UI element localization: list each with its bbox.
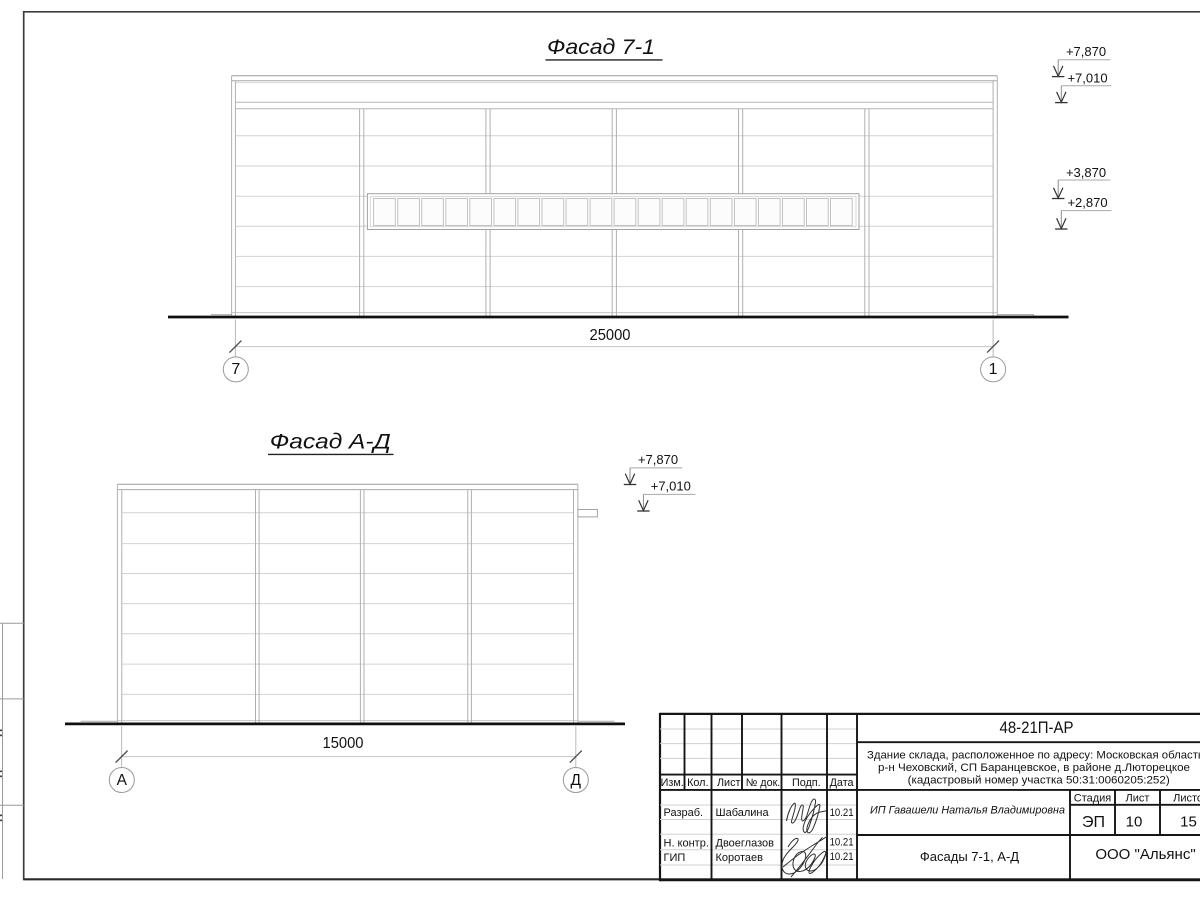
- svg-text:р-н Чеховский, СП Баранцевское: р-н Чеховский, СП Баранцевское, в районе…: [878, 762, 1190, 774]
- svg-text:10.21: 10.21: [830, 836, 854, 848]
- svg-text:+7,010: +7,010: [1067, 70, 1107, 85]
- svg-text:Подп.: Подп.: [792, 777, 821, 789]
- svg-text:48-21П-АР: 48-21П-АР: [1000, 719, 1074, 737]
- svg-text:15000: 15000: [323, 735, 364, 752]
- svg-text:1: 1: [989, 361, 998, 378]
- svg-text:Фасад А-Д: Фасад А-Д: [270, 429, 391, 453]
- svg-text:Кол.: Кол.: [687, 777, 708, 789]
- svg-text:Стадия: Стадия: [1074, 792, 1112, 804]
- svg-text:ГИП: ГИП: [664, 852, 686, 864]
- svg-text:Двоеглазов: Двоеглазов: [716, 838, 775, 850]
- svg-text:10: 10: [1126, 814, 1143, 831]
- svg-text:Коротаев: Коротаев: [716, 852, 764, 864]
- svg-text:ЭП: ЭП: [1082, 814, 1105, 831]
- svg-text:(кадастровый номер участка 50:: (кадастровый номер участка 50:31:0060205…: [908, 774, 1170, 786]
- svg-text:№ док.: № док.: [746, 777, 781, 789]
- svg-text:Листов: Листов: [1173, 792, 1200, 804]
- svg-text:ООО "Альянс": ООО "Альянс": [1095, 846, 1195, 863]
- svg-text:Лист: Лист: [717, 777, 741, 789]
- svg-text:+7,010: +7,010: [651, 478, 691, 493]
- svg-text:Д: Д: [571, 772, 582, 789]
- svg-text:Лист: Лист: [1126, 792, 1150, 804]
- svg-text:Изм.: Изм.: [661, 777, 684, 789]
- svg-text:10.21: 10.21: [830, 807, 854, 819]
- svg-text:25000: 25000: [590, 327, 631, 344]
- svg-text:А: А: [117, 772, 128, 789]
- svg-text:ИП Гавашели Наталья Владимиров: ИП Гавашели Наталья Владимировна: [870, 804, 1065, 816]
- svg-text:Дата: Дата: [830, 777, 854, 789]
- svg-text:15: 15: [1180, 814, 1197, 831]
- svg-text:10.21: 10.21: [830, 851, 854, 863]
- svg-text:7: 7: [231, 361, 240, 378]
- svg-text:Фасады 7-1, А-Д: Фасады 7-1, А-Д: [920, 849, 1019, 864]
- svg-text:Н. контр.: Н. контр.: [664, 838, 709, 850]
- svg-text:Разраб.: Разраб.: [664, 807, 704, 819]
- svg-text:Фасад 7-1: Фасад 7-1: [547, 35, 655, 59]
- svg-text:Здание склада, расположенное п: Здание склада, расположенное по адресу: …: [867, 750, 1200, 762]
- svg-text:Шабалина: Шабалина: [716, 807, 770, 819]
- svg-text:+2,870: +2,870: [1067, 195, 1107, 210]
- svg-text:+7,870: +7,870: [1066, 44, 1106, 59]
- svg-text:+7,870: +7,870: [638, 452, 678, 467]
- svg-text:+3,870: +3,870: [1066, 165, 1106, 180]
